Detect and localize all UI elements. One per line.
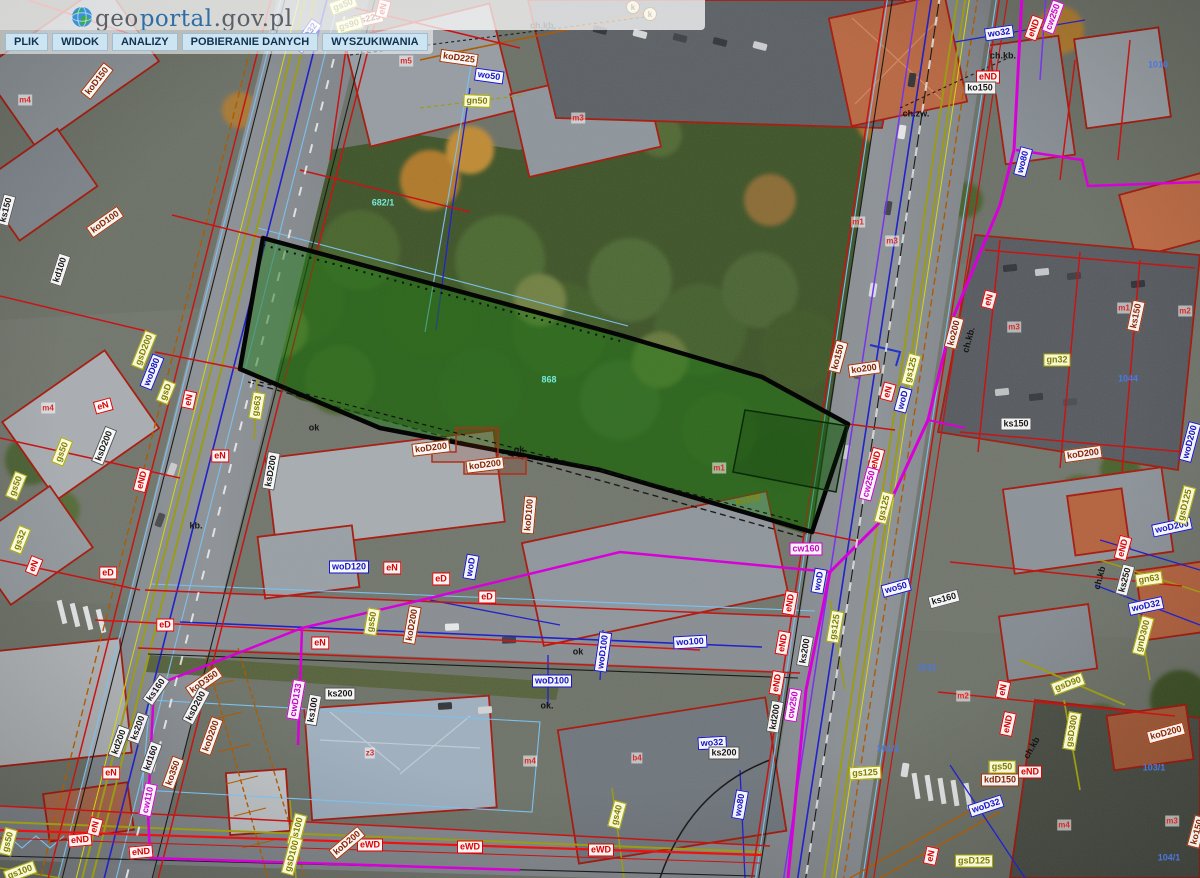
menu-widok[interactable]: WIDOK: [52, 33, 108, 51]
logo-text-suffix: .gov.pl: [214, 6, 293, 32]
logo-text-geo: geo: [95, 6, 139, 32]
globe-icon: [70, 5, 94, 29]
site-logo[interactable]: geoportal.gov.pl: [0, 0, 705, 32]
main-menu: PLIKWIDOKANALIZYPOBIERANIE DANYCHWYSZUKI…: [0, 30, 433, 54]
aerial-basemap: [0, 0, 1200, 878]
menu-analizy[interactable]: ANALIZY: [112, 33, 178, 51]
logo-text-portal: portal: [140, 6, 213, 32]
map-canvas[interactable]: gs50ks225gs90eNwoD32koD150m4ks150koD100k…: [0, 0, 1200, 878]
menu-pobieranie-danych[interactable]: POBIERANIE DANYCH: [182, 33, 319, 51]
menu-plik[interactable]: PLIK: [5, 33, 48, 51]
logo-band: geoportal.gov.pl: [0, 0, 705, 30]
menu-wyszukiwania[interactable]: WYSZUKIWANIA: [322, 33, 427, 51]
geoportal-app: gs50ks225gs90eNwoD32koD150m4ks150koD100k…: [0, 0, 1200, 878]
